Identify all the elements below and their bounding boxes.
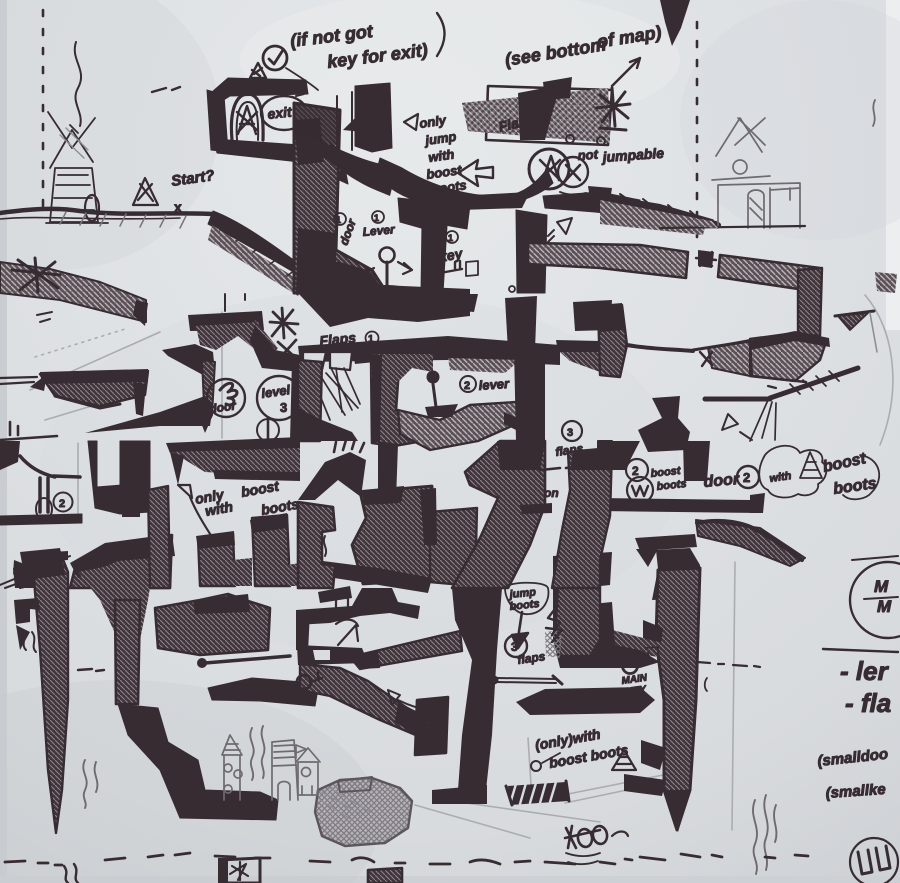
svg-text:on: on [544,486,559,500]
svg-text:lever: lever [478,376,510,393]
svg-text:1: 1 [448,233,453,243]
svg-text:not: not [577,147,599,163]
svg-text:2: 2 [464,380,470,392]
svg-text:3: 3 [511,640,518,654]
svg-text:M: M [877,597,892,616]
svg-text:- fla: - fla [845,688,891,718]
svg-text:1: 1 [374,213,379,223]
svg-text:door: door [703,471,741,491]
svg-text:2: 2 [632,464,639,478]
svg-text:2: 2 [743,470,750,485]
svg-text:3: 3 [567,427,573,439]
svg-text:- ler: - ler [840,656,890,686]
svg-text:1: 1 [336,215,341,225]
svg-text:2: 2 [59,498,65,510]
svg-text:Lever: Lever [362,222,396,239]
svg-text:3: 3 [280,400,287,415]
svg-text:exit: exit [267,103,294,122]
svg-text:M: M [874,577,889,596]
